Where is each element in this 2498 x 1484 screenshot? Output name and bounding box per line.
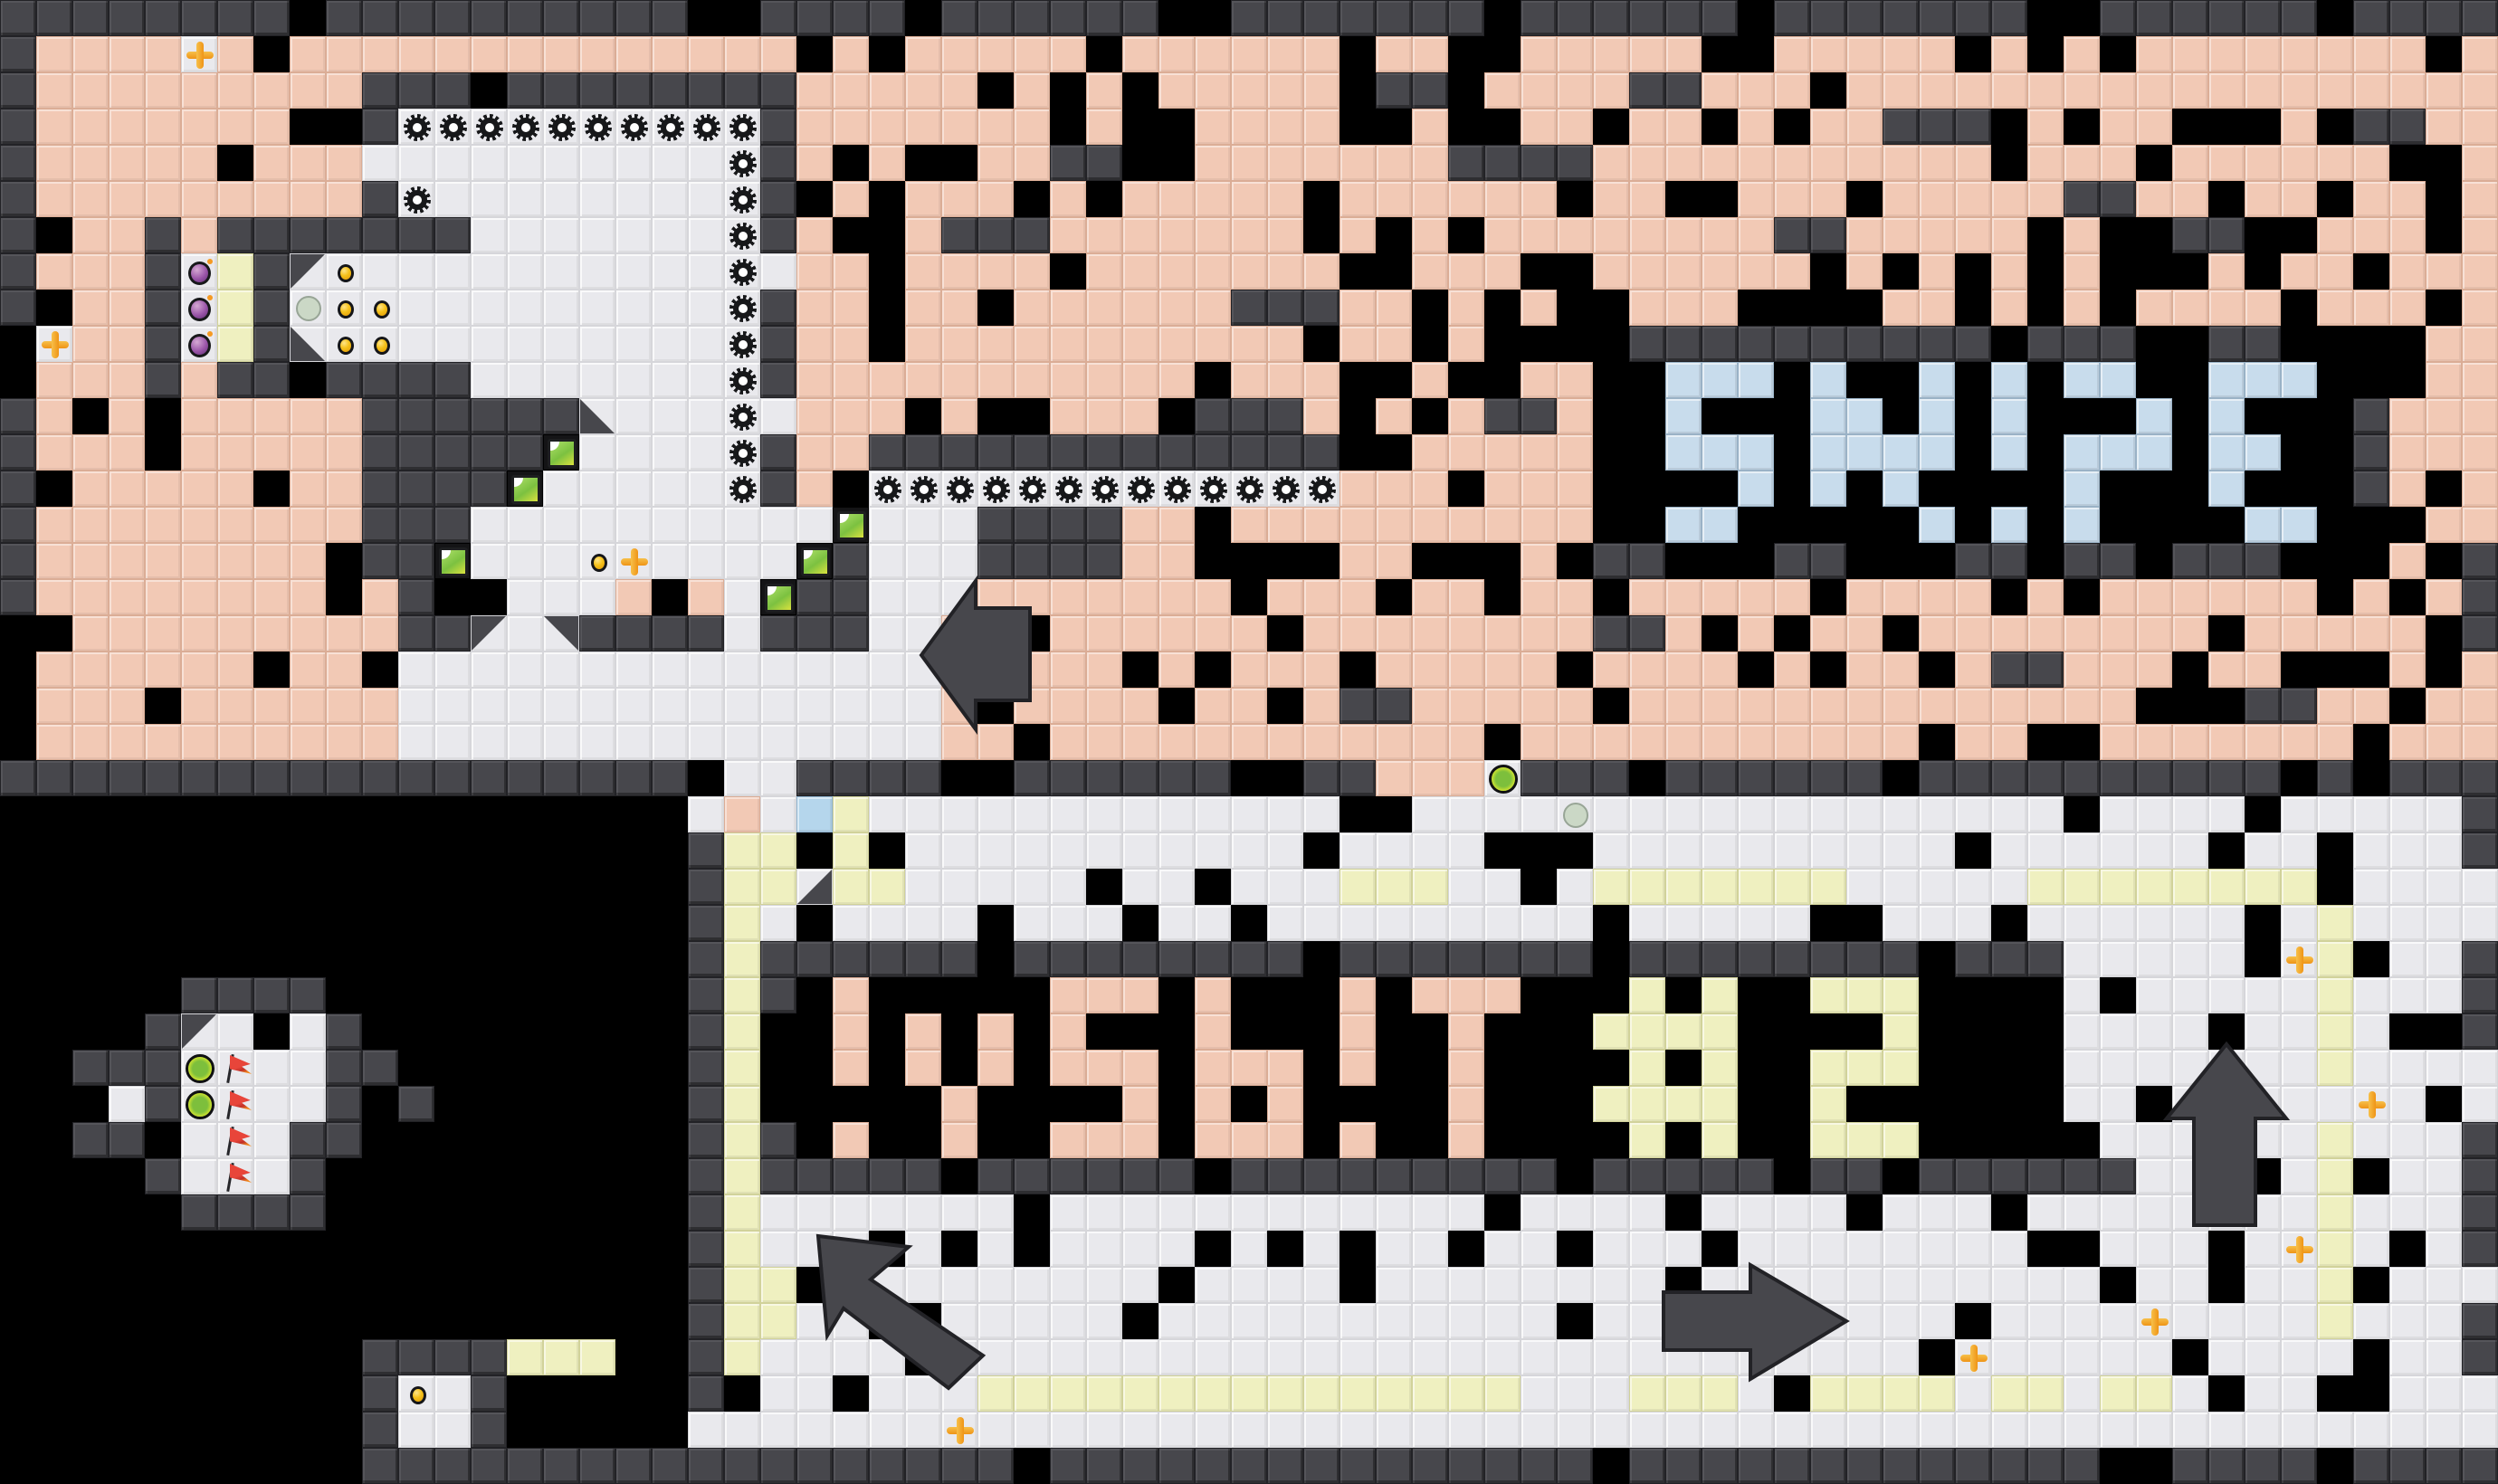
- pink-tile: [145, 145, 181, 181]
- floor-tile: [2245, 1303, 2281, 1339]
- pink-tile: [2317, 217, 2353, 253]
- wall-tile: [2027, 1448, 2064, 1484]
- pink-tile: [1231, 615, 1267, 652]
- pink-tile: [36, 109, 72, 145]
- floor-tile: [2064, 905, 2100, 941]
- floor-tile: [1050, 1194, 1086, 1231]
- pink-tile: [2064, 652, 2100, 688]
- pink-tile: [36, 72, 72, 109]
- yellow-path-tile: [1810, 1122, 1846, 1158]
- wall-tile: [2064, 1448, 2100, 1484]
- wall-tile: [1484, 145, 1521, 181]
- pink-tile: [253, 688, 290, 724]
- gear-hazard-icon: [724, 326, 760, 362]
- pink-tile: [2281, 724, 2317, 760]
- pink-tile: [1267, 1122, 1303, 1158]
- floor-tile: [2426, 1050, 2462, 1086]
- floor-tile: [1448, 1303, 1484, 1339]
- wall-tile: [579, 760, 615, 796]
- wall-tile: [507, 434, 543, 471]
- wall-tile: [1267, 434, 1303, 471]
- red-flag-icon: [217, 1050, 253, 1086]
- floor-tile: [941, 905, 977, 941]
- floor-tile: [724, 1412, 760, 1448]
- wall-tile: [2100, 181, 2136, 217]
- floor-tile: [1593, 1412, 1629, 1448]
- wall-tile: [1919, 326, 1955, 362]
- gear-hazard-icon: [507, 109, 543, 145]
- floor-tile: [471, 326, 507, 362]
- pink-tile: [724, 796, 760, 832]
- floor-tile: [471, 652, 507, 688]
- floor-tile: [796, 1231, 833, 1267]
- floor-tile: [1484, 1231, 1521, 1267]
- pink-tile: [2136, 290, 2172, 326]
- floor-tile: [1738, 1231, 1774, 1267]
- floor-tile: [2100, 905, 2136, 941]
- pink-tile: [1231, 145, 1267, 181]
- pink-tile: [109, 145, 145, 181]
- pink-tile: [72, 471, 109, 507]
- wall-tile: [1340, 1448, 1376, 1484]
- pink-tile: [1231, 688, 1267, 724]
- wall-tile: [1267, 0, 1303, 36]
- pink-tile: [217, 434, 253, 471]
- pink-tile: [1810, 615, 1846, 652]
- floor-tile: [2100, 796, 2136, 832]
- pink-tile: [217, 688, 253, 724]
- floor-tile: [1448, 1267, 1484, 1303]
- floor-tile: [1267, 832, 1303, 869]
- floor-tile: [1412, 1231, 1448, 1267]
- wall-slope: [543, 615, 579, 652]
- wall-tile: [760, 290, 796, 326]
- orange-cross-icon: [2136, 1303, 2172, 1339]
- gear-hazard-icon: [1158, 471, 1195, 507]
- wall-tile: [796, 615, 833, 652]
- wall-tile: [1774, 0, 1810, 36]
- pink-tile: [1086, 253, 1122, 290]
- pink-tile: [1158, 36, 1195, 72]
- pink-tile: [1774, 579, 1810, 615]
- pink-tile: [2462, 181, 2498, 217]
- pink-tile: [977, 145, 1014, 181]
- game-map[interactable]: [0, 0, 2498, 1484]
- wall-tile: [2208, 1448, 2245, 1484]
- yellow-path-tile: [1629, 1050, 1665, 1086]
- floor-tile: [1738, 1339, 1774, 1375]
- floor-tile: [2064, 1412, 2100, 1448]
- wall-tile: [434, 434, 471, 471]
- wall-tile: [362, 1448, 398, 1484]
- pink-tile: [109, 507, 145, 543]
- wall-tile: [977, 1448, 1014, 1484]
- pink-tile: [2245, 615, 2281, 652]
- pink-tile: [181, 398, 217, 434]
- pink-tile: [181, 652, 217, 688]
- wall-tile: [977, 0, 1014, 36]
- pink-tile: [833, 72, 869, 109]
- floor-tile: [2353, 1194, 2389, 1231]
- floor-tile: [1086, 796, 1122, 832]
- pink-tile: [941, 290, 977, 326]
- wall-tile: [1521, 1158, 1557, 1194]
- pink-tile: [2317, 72, 2353, 109]
- pink-tile: [326, 615, 362, 652]
- wall-tile: [362, 507, 398, 543]
- wall-tile: [1303, 760, 1340, 796]
- wall-tile: [1122, 0, 1158, 36]
- wall-tile: [398, 398, 434, 434]
- floor-tile: [1846, 1231, 1883, 1267]
- wall-tile: [2353, 398, 2389, 434]
- yellow-path-tile: [217, 326, 253, 362]
- floor-tile: [905, 652, 941, 688]
- wall-tile: [760, 434, 796, 471]
- pink-tile: [1340, 579, 1376, 615]
- pink-tile: [724, 36, 760, 72]
- floor-tile: [1484, 796, 1521, 832]
- yellow-path-tile: [2317, 1194, 2353, 1231]
- pink-tile: [2426, 362, 2462, 398]
- pink-tile: [1521, 507, 1557, 543]
- pink-tile: [290, 724, 326, 760]
- pink-tile: [1122, 615, 1158, 652]
- pink-tile: [2462, 145, 2498, 181]
- floor-tile: [1593, 1339, 1629, 1375]
- wall-tile: [217, 977, 253, 1013]
- pink-tile: [109, 724, 145, 760]
- floor-tile: [615, 326, 652, 362]
- yellow-path-tile: [833, 796, 869, 832]
- pink-tile: [796, 471, 833, 507]
- floor-tile: [688, 217, 724, 253]
- wall-tile: [688, 1050, 724, 1086]
- wall-tile: [796, 0, 833, 36]
- wall-tile: [1738, 326, 1774, 362]
- floor-tile: [1991, 796, 2027, 832]
- floor-tile: [1593, 1231, 1629, 1267]
- pink-tile: [2100, 724, 2136, 760]
- yellow-path-tile: [1267, 1375, 1303, 1412]
- floor-tile: [2426, 941, 2462, 977]
- wall-tile: [1883, 0, 1919, 36]
- pink-tile: [1883, 72, 1919, 109]
- wall-tile: [1412, 941, 1448, 977]
- floor-tile: [507, 253, 543, 290]
- pink-tile: [1738, 181, 1774, 217]
- floor-tile: [1991, 1303, 2027, 1339]
- pink-tile: [326, 688, 362, 724]
- pink-tile: [2462, 109, 2498, 145]
- floor-tile: [471, 507, 507, 543]
- pink-tile: [1014, 36, 1050, 72]
- pink-tile: [1484, 615, 1521, 652]
- letter-tile: [1702, 362, 1738, 398]
- pink-tile: [833, 326, 869, 362]
- wall-tile: [362, 109, 398, 145]
- wall-tile: [2462, 1303, 2498, 1339]
- yellow-path-tile: [1702, 1122, 1738, 1158]
- spawn-circle-icon: [181, 1050, 217, 1086]
- yellow-path-tile: [1412, 1375, 1448, 1412]
- floor-tile: [579, 326, 615, 362]
- floor-tile: [833, 1412, 869, 1448]
- coin-icon: [326, 253, 362, 290]
- wall-tile: [760, 1122, 796, 1158]
- floor-tile: [1340, 1339, 1376, 1375]
- pink-tile: [2353, 217, 2389, 253]
- floor-tile: [1050, 905, 1086, 941]
- pink-tile: [1412, 579, 1448, 615]
- wall-tile: [290, 760, 326, 796]
- floor-tile: [398, 688, 434, 724]
- floor-tile: [1086, 1412, 1122, 1448]
- pink-tile: [2389, 290, 2426, 326]
- wall-tile: [1340, 760, 1376, 796]
- floor-tile: [1014, 832, 1050, 869]
- floor-tile: [1340, 1303, 1376, 1339]
- floor-tile: [1557, 1375, 1593, 1412]
- pink-tile: [1340, 1013, 1376, 1050]
- pink-tile: [1340, 145, 1376, 181]
- floor-tile: [688, 362, 724, 398]
- pink-tile: [905, 36, 941, 72]
- pink-tile: [1629, 109, 1665, 145]
- pink-tile: [2462, 326, 2498, 362]
- pink-tile: [1050, 326, 1086, 362]
- floor-tile: [2245, 1375, 2281, 1412]
- wall-tile: [1955, 1448, 1991, 1484]
- letter-tile: [2100, 434, 2136, 471]
- pink-tile: [1303, 145, 1340, 181]
- floor-tile: [579, 507, 615, 543]
- gear-hazard-icon: [724, 253, 760, 290]
- pink-tile: [1883, 579, 1919, 615]
- pink-tile: [1991, 36, 2027, 72]
- pink-tile: [1774, 181, 1810, 217]
- floor-tile: [1376, 1194, 1412, 1231]
- wall-tile: [326, 362, 362, 398]
- floor-tile: [2426, 1194, 2462, 1231]
- floor-tile: [543, 507, 579, 543]
- wall-tile: [833, 1448, 869, 1484]
- pink-tile: [2462, 507, 2498, 543]
- pink-tile: [2208, 579, 2245, 615]
- pink-tile: [1086, 1122, 1122, 1158]
- pink-tile: [1376, 471, 1412, 507]
- wall-tile: [109, 1122, 145, 1158]
- floor-tile: [2172, 1267, 2208, 1303]
- wall-tile: [1050, 941, 1086, 977]
- letter-tile: [2245, 507, 2281, 543]
- floor-tile: [615, 471, 652, 507]
- wall-tile: [362, 398, 398, 434]
- wall-tile: [1846, 941, 1883, 977]
- wall-tile: [1086, 1448, 1122, 1484]
- coin-icon: [326, 290, 362, 326]
- yellow-path-tile: [1231, 1375, 1267, 1412]
- wall-tile: [796, 760, 833, 796]
- pink-tile: [1991, 253, 2027, 290]
- pink-tile: [1521, 434, 1557, 471]
- wall-tile: [1195, 760, 1231, 796]
- pink-tile: [2208, 253, 2245, 290]
- pink-tile: [1267, 507, 1303, 543]
- floor-tile: [1086, 1339, 1122, 1375]
- wall-tile: [2064, 1158, 2100, 1194]
- yellow-path-tile: [1810, 977, 1846, 1013]
- yellow-path-tile: [1340, 1375, 1376, 1412]
- spawn-circle-icon: [181, 1086, 217, 1122]
- wall-tile: [217, 760, 253, 796]
- floor-tile: [1702, 1303, 1738, 1339]
- floor-tile: [905, 579, 941, 615]
- pink-tile: [145, 109, 181, 145]
- wall-tile: [1846, 326, 1883, 362]
- pink-tile: [1448, 1086, 1484, 1122]
- wall-tile: [507, 398, 543, 434]
- yellow-path-tile: [217, 253, 253, 290]
- floor-tile: [1303, 869, 1340, 905]
- pink-tile: [362, 36, 398, 72]
- orange-cross-icon: [36, 326, 72, 362]
- pink-tile: [941, 688, 977, 724]
- wall-tile: [72, 760, 109, 796]
- floor-tile: [1738, 1194, 1774, 1231]
- wall-tile: [1050, 434, 1086, 471]
- wall-tile: [1050, 145, 1086, 181]
- pink-tile: [326, 724, 362, 760]
- wall-tile: [724, 72, 760, 109]
- pink-tile: [941, 109, 977, 145]
- floor-tile: [941, 832, 977, 869]
- floor-tile: [760, 507, 796, 543]
- pink-tile: [109, 217, 145, 253]
- wall-tile: [1195, 941, 1231, 977]
- floor-tile: [1195, 1303, 1231, 1339]
- pink-tile: [1231, 507, 1267, 543]
- wall-tile: [579, 72, 615, 109]
- floor-tile: [1774, 832, 1810, 869]
- pink-tile: [1014, 253, 1050, 290]
- yellow-path-tile: [1846, 1122, 1883, 1158]
- floor-tile: [471, 253, 507, 290]
- pink-tile: [796, 434, 833, 471]
- floor-tile: [1303, 1303, 1340, 1339]
- floor-tile: [1303, 1412, 1340, 1448]
- pink-tile: [2317, 36, 2353, 72]
- pink-tile: [1484, 688, 1521, 724]
- yellow-path-tile: [1629, 1375, 1665, 1412]
- wall-tile: [1738, 760, 1774, 796]
- pink-tile: [1629, 688, 1665, 724]
- floor-tile: [507, 145, 543, 181]
- pink-tile: [2462, 398, 2498, 434]
- pink-tile: [2064, 290, 2100, 326]
- floor-tile: [1810, 1339, 1846, 1375]
- floor-tile: [2245, 1050, 2281, 1086]
- pink-tile: [1086, 72, 1122, 109]
- wall-tile: [2426, 0, 2462, 36]
- wall-tile: [1122, 941, 1158, 977]
- wall-tile: [1810, 217, 1846, 253]
- wall-tile: [1195, 1448, 1231, 1484]
- floor-tile: [1955, 869, 1991, 905]
- floor-tile: [833, 905, 869, 941]
- yellow-path-tile: [724, 1013, 760, 1050]
- pink-tile: [1484, 181, 1521, 217]
- wall-tile: [652, 0, 688, 36]
- gem-pickup-icon: [796, 543, 833, 579]
- pink-tile: [1774, 145, 1810, 181]
- floor-tile: [1340, 1194, 1376, 1231]
- pink-tile: [1448, 615, 1484, 652]
- pink-tile: [2100, 109, 2136, 145]
- floor-tile: [833, 688, 869, 724]
- floor-tile: [1231, 1303, 1267, 1339]
- floor-tile: [1521, 1267, 1557, 1303]
- pink-tile: [1521, 471, 1557, 507]
- pink-tile: [2208, 145, 2245, 181]
- wall-tile: [760, 1158, 796, 1194]
- pink-tile: [869, 109, 905, 145]
- letter-tile: [1991, 507, 2027, 543]
- floor-tile: [1846, 1303, 1883, 1339]
- wall-tile: [434, 615, 471, 652]
- floor-tile: [869, 724, 905, 760]
- pink-tile: [1158, 253, 1195, 290]
- pink-tile: [2389, 434, 2426, 471]
- wall-tile: [941, 1448, 977, 1484]
- pink-tile: [1846, 145, 1883, 181]
- pink-tile: [1448, 181, 1484, 217]
- wall-tile: [905, 941, 941, 977]
- floor-tile: [652, 434, 688, 471]
- pink-tile: [1883, 145, 1919, 181]
- pink-tile: [1086, 579, 1122, 615]
- grenade-pickup-icon: [181, 290, 217, 326]
- floor-tile: [2100, 1303, 2136, 1339]
- pink-tile: [1376, 724, 1412, 760]
- floor-tile: [507, 615, 543, 652]
- pink-tile: [905, 217, 941, 253]
- floor-tile: [1955, 796, 1991, 832]
- pink-tile: [1158, 217, 1195, 253]
- pink-tile: [1665, 688, 1702, 724]
- floor-tile: [1267, 796, 1303, 832]
- wall-tile: [217, 0, 253, 36]
- orange-cross-icon: [2281, 941, 2317, 977]
- letter-tile: [2208, 398, 2245, 434]
- wall-tile: [869, 434, 905, 471]
- floor-tile: [543, 652, 579, 688]
- letter-tile: [1919, 398, 1955, 434]
- pink-tile: [36, 543, 72, 579]
- floor-tile: [1593, 1194, 1629, 1231]
- wall-tile: [1484, 1448, 1521, 1484]
- floor-tile: [905, 1267, 941, 1303]
- floor-tile: [1050, 1412, 1086, 1448]
- gear-hazard-icon: [688, 109, 724, 145]
- wall-tile: [1231, 941, 1267, 977]
- pink-tile: [1122, 1050, 1158, 1086]
- pink-tile: [362, 615, 398, 652]
- wall-tile: [434, 471, 471, 507]
- wall-tile: [760, 217, 796, 253]
- wall-tile: [2462, 832, 2498, 869]
- pink-tile: [1376, 507, 1412, 543]
